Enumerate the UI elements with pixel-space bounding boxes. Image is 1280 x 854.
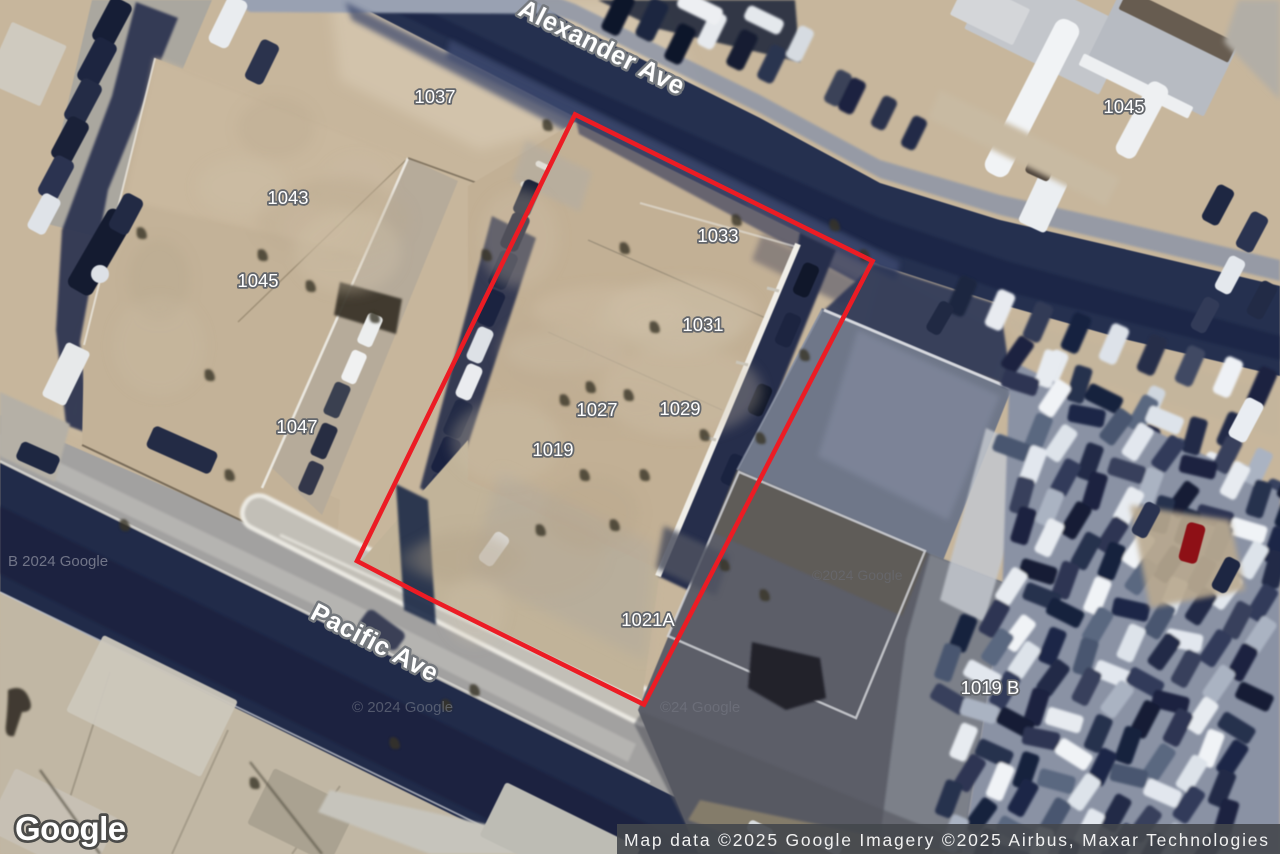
svg-text:1021A: 1021A (621, 609, 675, 630)
svg-text:1045: 1045 (237, 270, 278, 291)
svg-text:© 2024 Google: © 2024 Google (352, 699, 453, 716)
svg-text:©24 Google: ©24 Google (660, 699, 740, 716)
svg-text:1043: 1043 (267, 187, 308, 208)
svg-text:1029: 1029 (659, 398, 700, 419)
svg-text:Map data ©2025 Google Imagery: Map data ©2025 Google Imagery ©2025 Airb… (624, 830, 1270, 850)
svg-text:1019 B: 1019 B (961, 677, 1020, 698)
svg-text:1019: 1019 (532, 439, 573, 460)
svg-text:1047: 1047 (276, 416, 317, 437)
svg-text:1027: 1027 (576, 399, 617, 420)
svg-text:1037: 1037 (414, 86, 455, 107)
svg-text:1045: 1045 (1103, 96, 1144, 117)
svg-text:©2024 Google: ©2024 Google (812, 567, 903, 583)
svg-text:Google: Google (15, 810, 126, 847)
svg-text:1033: 1033 (697, 225, 738, 246)
svg-text:1031: 1031 (682, 314, 723, 335)
svg-text:B 2024 Google: B 2024 Google (8, 553, 108, 570)
